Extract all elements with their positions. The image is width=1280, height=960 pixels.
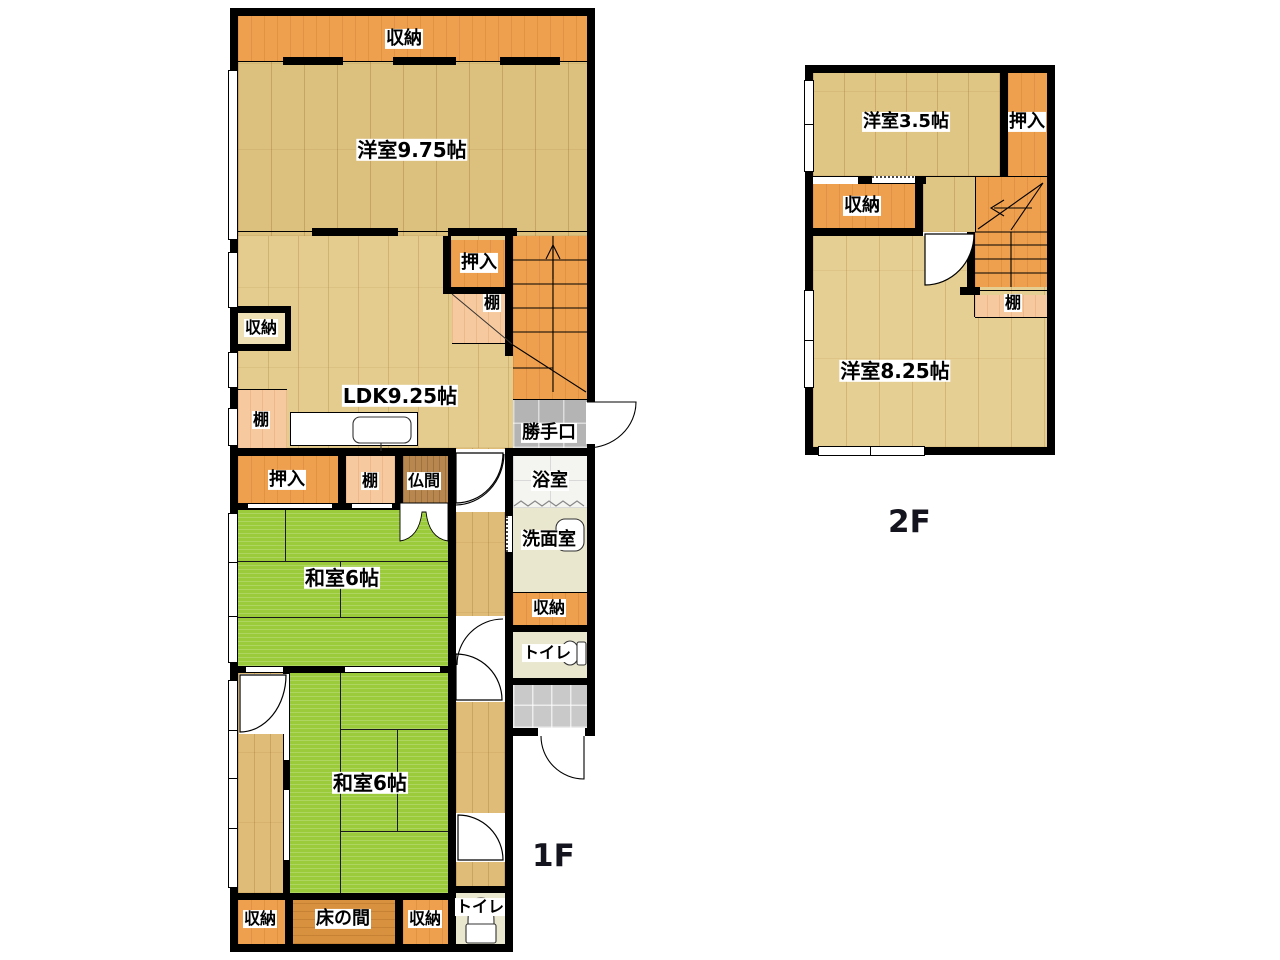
entrance-door-swing: [541, 736, 584, 779]
f2-divider-line: [813, 176, 1047, 177]
room-label: 収納: [843, 196, 881, 216]
room-label: 洋室9.75帖: [356, 139, 467, 161]
window: [228, 70, 238, 240]
room-label: 収納: [244, 319, 278, 337]
room-label: 棚: [1004, 294, 1022, 312]
window-tick: [228, 778, 238, 779]
f1-oshiire-wall: [443, 287, 513, 294]
window-tick: [228, 828, 238, 829]
f1-wall: [505, 678, 595, 685]
fusuma-slit: [284, 790, 289, 860]
window: [228, 680, 238, 888]
tatami-mat-line: [238, 617, 456, 618]
f1-wall-seg: [312, 228, 398, 236]
door-opening: [456, 616, 505, 702]
floor1-title: 1F: [532, 838, 575, 874]
f2-outer-wall-top: [805, 65, 1055, 73]
window: [804, 80, 814, 172]
room-label: 洋室8.25帖: [839, 360, 950, 382]
f1-stairs: [513, 236, 587, 400]
f1-wall-seg: [393, 57, 456, 65]
f1-oshiire-wall: [443, 236, 451, 293]
f1-ldk-bottom-wall: [230, 448, 456, 456]
room-label: 押入: [1008, 112, 1046, 132]
f2-wall: [1000, 73, 1008, 176]
room-label: 収納: [243, 910, 277, 928]
plan-symbols-overlay: [0, 0, 1280, 960]
room-label: LDK9.25帖: [342, 385, 458, 407]
room-label: 収納: [385, 29, 423, 49]
f2-wall-seg: [960, 287, 980, 295]
f1-room-divider-line: [238, 231, 587, 232]
f1-outer-wall-top: [230, 8, 595, 16]
f1-stairs-wall: [505, 236, 513, 356]
f2-outer-wall-right: [1047, 65, 1055, 455]
entrance-opening: [538, 728, 585, 736]
room-label: 棚: [361, 472, 379, 490]
room-label: 浴室: [531, 471, 569, 491]
window: [804, 290, 814, 388]
f1-kitchen-counter: [290, 412, 418, 446]
f2-tana-line: [974, 295, 975, 317]
room-label: 押入: [268, 470, 306, 490]
room-label: 仏間: [407, 472, 441, 490]
window-tick: [870, 446, 871, 456]
room-label: 収納: [408, 910, 442, 928]
f1-bath-top-wall: [505, 448, 595, 456]
f2-closet-bottom-wall: [805, 228, 923, 236]
f2-tana-line: [980, 290, 1047, 291]
room-label: 勝手口: [521, 423, 577, 443]
fusuma-slit: [352, 504, 392, 508]
f1-corridor-wall-right: [505, 456, 513, 728]
tatami-mat-line: [238, 561, 456, 562]
door-opening: [456, 813, 505, 862]
floor2-title: 2F: [888, 504, 931, 540]
room-label: 棚: [483, 294, 501, 312]
room-label: 収納: [532, 599, 566, 617]
room-label: 洗面室: [521, 530, 577, 550]
backdoor-opening: [586, 402, 596, 444]
window-tick: [804, 340, 814, 341]
f2-hall: [923, 177, 975, 232]
f1-wall: [395, 900, 403, 944]
f1-tana-line: [238, 389, 287, 390]
f1-wall: [338, 456, 346, 503]
room-label: 洋室3.5帖: [862, 112, 950, 132]
tatami-mat-line: [285, 503, 286, 562]
room-label: 棚: [252, 411, 270, 429]
window-tick: [228, 562, 238, 563]
fusuma-opening: [246, 667, 283, 672]
f2-stairs-wall: [967, 232, 975, 287]
window: [228, 408, 238, 446]
window-tick: [228, 730, 238, 731]
tatami-mat-line: [340, 729, 456, 730]
f1-niche-wall: [285, 313, 291, 344]
room-label: 和室6帖: [304, 567, 380, 589]
fusuma-opening: [345, 667, 440, 672]
window: [818, 446, 925, 456]
f1-wall-seg: [283, 57, 343, 65]
f1-wall-seg: [448, 228, 517, 236]
f1-wall: [285, 900, 293, 944]
f1-wall: [505, 625, 595, 632]
room-label: 床の間: [315, 909, 371, 929]
door-opening: [456, 449, 505, 512]
room-label: トイレ: [522, 644, 572, 662]
pocket-door-dotted: [506, 516, 512, 552]
f2-tana-line: [975, 317, 1047, 318]
f1-bottom-row-wall: [238, 893, 456, 900]
f1-niche-wall: [230, 306, 291, 313]
floor-plan-canvas: 収納 洋室9.75帖 押入 棚 収納 LDK9.25帖 棚 勝手口 押入 棚 仏…: [0, 0, 1280, 960]
f1-outer-wall-bottom: [230, 944, 513, 952]
f1-washroom-line: [513, 592, 587, 593]
f2-stairs: [975, 176, 1047, 287]
room-label: 押入: [460, 253, 498, 273]
room-label: 和室6帖: [332, 772, 408, 794]
f1-wall: [395, 456, 403, 503]
f1-washroom: [513, 508, 587, 593]
window: [228, 513, 238, 663]
fusuma-slit: [248, 504, 332, 508]
f1-outer-wall-right-lower: [505, 728, 513, 952]
window-tick: [228, 616, 238, 617]
tatami-mat-line: [340, 831, 456, 832]
window-tick: [804, 124, 814, 125]
f1-genkan-entry: [513, 685, 587, 728]
room-label: トイレ: [455, 898, 505, 916]
f1-tana-line: [452, 343, 512, 344]
f1-wall-seg: [500, 57, 560, 65]
window: [228, 252, 238, 308]
window: [228, 352, 238, 388]
f2-stairs-line: [975, 176, 976, 232]
f1-toilet-top-wall: [456, 886, 505, 893]
f1-niche-wall: [230, 344, 291, 351]
f1-stairs-bottom-line: [513, 399, 587, 400]
sliding-door-dotted: [872, 176, 918, 183]
door-opening: [239, 674, 289, 734]
f2-wall: [915, 176, 923, 232]
